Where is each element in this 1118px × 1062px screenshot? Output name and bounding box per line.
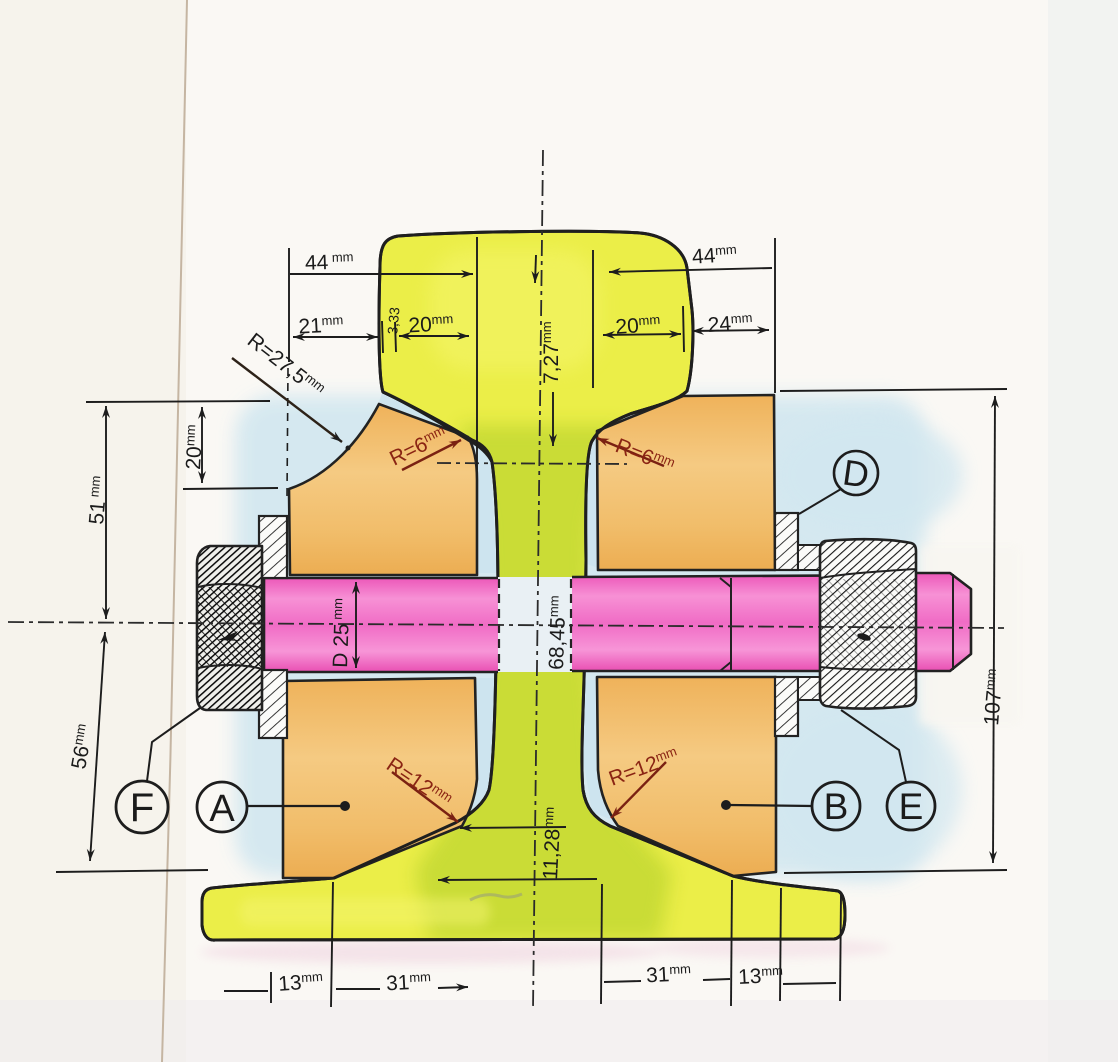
svg-text:3,33: 3,33 <box>384 306 402 335</box>
svg-text:A: A <box>209 788 235 830</box>
svg-text:F: F <box>130 786 154 830</box>
svg-text:B: B <box>824 786 849 827</box>
svg-text:E: E <box>899 786 924 827</box>
